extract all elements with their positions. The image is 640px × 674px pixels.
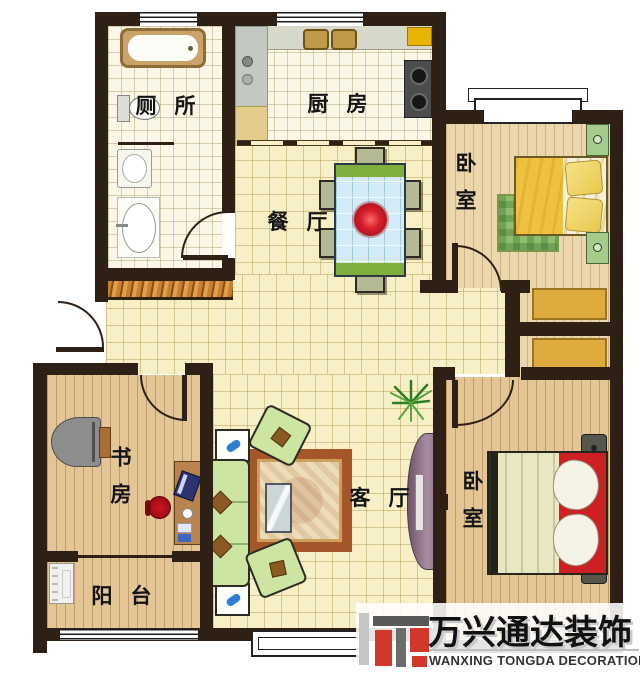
window-jamb (572, 110, 588, 124)
wall-segment (95, 268, 235, 280)
laptop-screen (177, 474, 188, 494)
wall-segment (420, 280, 455, 293)
pedestal-sink (117, 197, 160, 258)
flower-centerpiece (354, 203, 387, 236)
table-end (336, 165, 404, 177)
wall-segment (172, 551, 200, 562)
coffee-table (265, 483, 292, 533)
room-label-study: 书房 (106, 446, 134, 554)
window (60, 629, 198, 640)
wall-segment (33, 363, 138, 375)
room-label-living: 客厅 (328, 486, 440, 512)
doormat (108, 278, 233, 300)
nightstand (586, 232, 609, 264)
mug (182, 508, 193, 519)
shower-partition (118, 142, 174, 145)
wall-segment (432, 12, 446, 280)
nightstand-lamp (593, 135, 602, 144)
room-label-dining: 餐厅 (246, 210, 358, 236)
pillow (565, 196, 604, 233)
balcony-slider (78, 555, 172, 558)
wall-segment (521, 367, 610, 380)
wall-segment (47, 551, 78, 562)
watermark: 万兴通达装饰 WANXING TONGDA DECORATION (356, 603, 640, 674)
wall-segment (610, 110, 623, 653)
stove-knob (242, 56, 253, 67)
kitchen-sink (331, 29, 357, 50)
phone (225, 592, 242, 607)
burner (410, 93, 428, 111)
brand-name-en: WANXING TONGDA DECORATION (429, 649, 639, 668)
corner-sink (117, 149, 152, 188)
chair-back (145, 500, 151, 516)
bathtub (120, 28, 206, 68)
room-label-bedroom-top: 卧室 (451, 152, 479, 264)
kitchen-dining-track (237, 140, 432, 146)
door-arc (58, 301, 104, 347)
door-leaf (56, 347, 104, 352)
phone (225, 438, 242, 453)
window (140, 12, 197, 26)
floor-plan: 厕所 厨房 餐厅 卧室 书房 客厅 卧室 阳台 万兴通达装饰 WANXING T… (0, 0, 640, 674)
nightstand-lamp (593, 243, 602, 252)
piano (51, 417, 101, 467)
plant-icon (389, 377, 433, 425)
wall-segment (222, 12, 235, 213)
bay-window (251, 630, 367, 657)
logo-stroke (373, 616, 429, 626)
faucet (116, 224, 128, 227)
wall-segment (95, 12, 108, 302)
desk-chair (148, 496, 171, 519)
room-label-bedroom-bottom: 卧室 (458, 470, 486, 582)
bay-window (474, 98, 582, 124)
sofa-pillow (269, 560, 287, 578)
logo-stroke (396, 628, 406, 667)
fridge (235, 26, 268, 108)
wall-segment (440, 367, 455, 380)
room-label-kitchen: 厨房 (286, 92, 398, 118)
sofa-pillow (270, 427, 291, 448)
wall-segment (33, 363, 47, 653)
pillow (565, 159, 604, 196)
wardrobe-cabinet (532, 288, 607, 320)
window-pane (258, 637, 360, 650)
brand-logo-icon (373, 609, 429, 667)
window (277, 12, 363, 26)
end-table (215, 429, 250, 462)
wall-segment (200, 363, 213, 640)
piano-keys (92, 422, 95, 462)
end-table (215, 583, 250, 616)
wall-segment (501, 280, 530, 293)
sink-basin (122, 203, 156, 253)
kitchen-box (407, 27, 432, 46)
wall-segment (518, 322, 610, 336)
papers (178, 534, 191, 542)
room-label-bathroom: 厕所 (118, 94, 222, 120)
papers (177, 523, 192, 533)
gas-stove (404, 60, 432, 118)
wardrobe-cabinet (532, 338, 607, 370)
kitchen-sink (303, 29, 329, 50)
window-jamb (468, 110, 484, 124)
logo-stroke (412, 656, 427, 667)
table-end (336, 263, 404, 275)
washer-controls (52, 567, 58, 601)
logo-bar (359, 613, 369, 665)
nightstand (586, 124, 609, 156)
brand-name-cn: 万兴通达装饰 (428, 605, 638, 654)
stove-knob (242, 74, 253, 85)
logo-stroke (410, 628, 429, 652)
sink-basin (122, 154, 147, 183)
logo-stroke (375, 630, 392, 666)
bathtub-drain (188, 46, 193, 51)
burner (410, 67, 428, 85)
room-label-balcony: 阳台 (70, 584, 182, 610)
